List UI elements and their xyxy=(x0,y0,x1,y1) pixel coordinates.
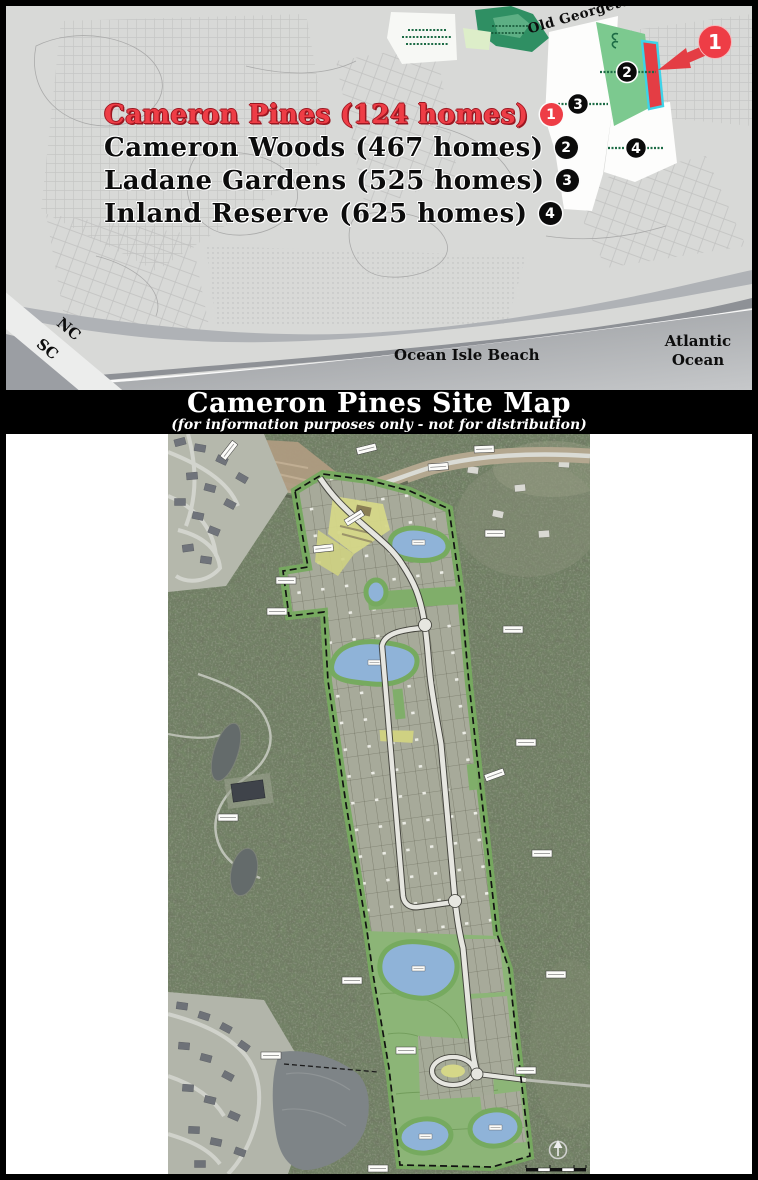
legend-badge-1: 1 xyxy=(540,103,563,126)
legend-item-cameron-pines: Cameron Pines (124 homes) 1 xyxy=(104,98,579,131)
legend-item-ladane-gardens: Ladane Gardens (525 homes) 3 xyxy=(104,164,579,197)
legend-item-cameron-woods: Cameron Woods (467 homes) 2 xyxy=(104,131,579,164)
legend-badge-4: 4 xyxy=(539,202,562,225)
pond-2 xyxy=(366,580,386,604)
ocean-label: Atlantic Ocean xyxy=(654,332,742,370)
site-map-document: 1 2 3 4 Cameron Pines (124 homes) 1 xyxy=(0,0,758,1180)
legend-item-inland-reserve: Inland Reserve (625 homes) 4 xyxy=(104,197,579,230)
title-banner: Cameron Pines Site Map (for information … xyxy=(6,390,752,434)
cul-de-sac-island xyxy=(441,1065,465,1078)
page-title: Cameron Pines Site Map xyxy=(6,390,752,418)
legend-badge-2: 2 xyxy=(555,136,578,159)
legend-label: Cameron Pines (124 homes) xyxy=(104,100,529,130)
legend-label: Ladane Gardens (525 homes) xyxy=(104,166,545,196)
legend-label: Cameron Woods (467 homes) xyxy=(104,133,544,163)
map-legend: Cameron Pines (124 homes) 1 Cameron Wood… xyxy=(104,98,579,230)
callout-badge-number: 1 xyxy=(708,30,722,54)
overview-map: 1 2 3 4 Cameron Pines (124 homes) 1 xyxy=(6,6,752,390)
site-plan-aerial xyxy=(168,434,590,1174)
map-badge-4: 4 xyxy=(631,141,641,157)
town-label: Ocean Isle Beach xyxy=(394,346,540,364)
legend-badge-3: 3 xyxy=(556,169,579,192)
legend-label: Inland Reserve (625 homes) xyxy=(104,199,528,229)
page-subtitle: (for information purposes only - not for… xyxy=(6,418,752,432)
site-plan-section xyxy=(6,434,752,1174)
map-badge-2: 2 xyxy=(622,65,632,81)
